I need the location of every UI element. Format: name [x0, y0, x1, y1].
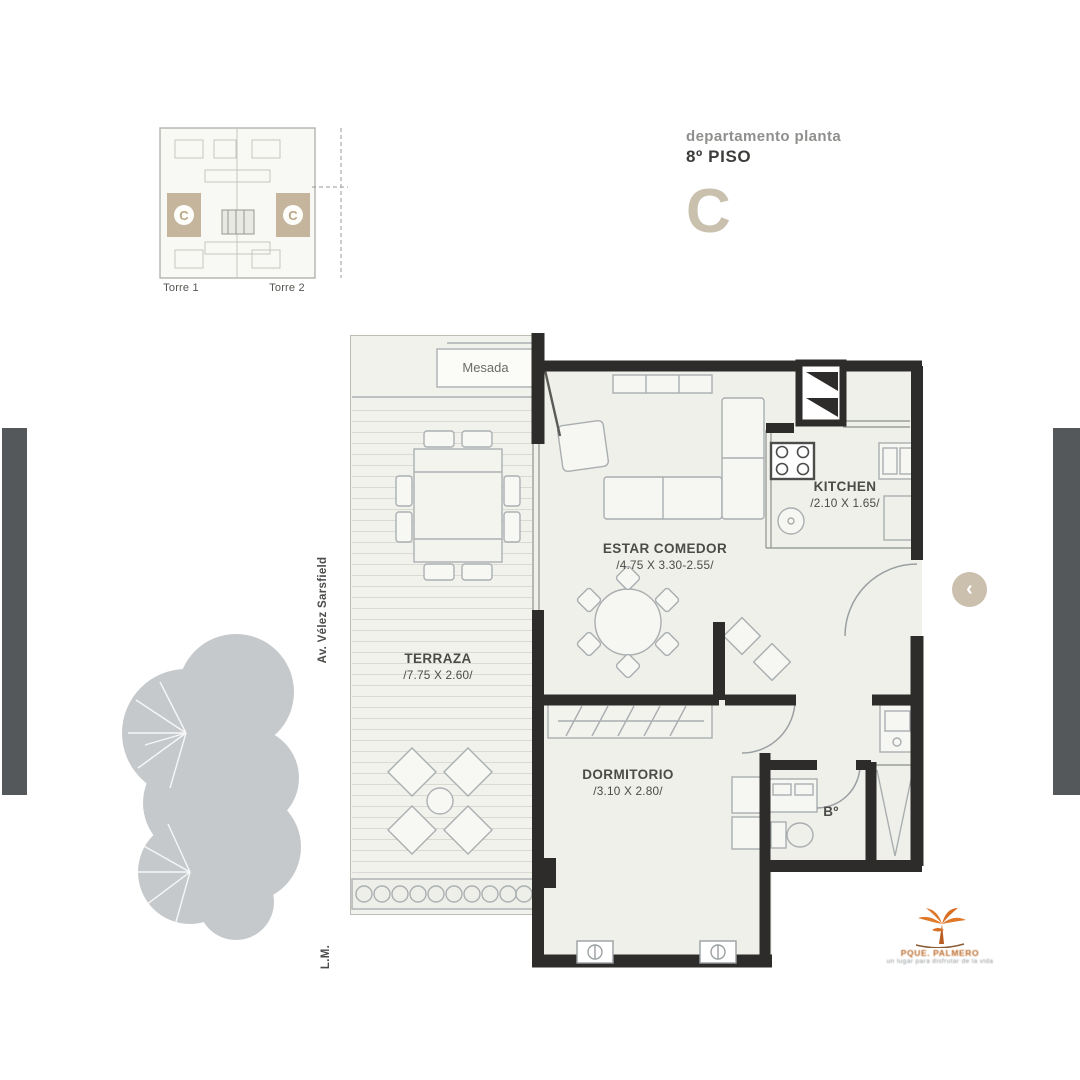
room-name: KITCHEN: [775, 478, 915, 496]
shower-icon: [877, 770, 913, 856]
room-name: ESTAR COMEDOR: [570, 540, 760, 558]
unit-floor-fill: [532, 361, 922, 961]
terrace-deck-lines: [352, 400, 532, 878]
key-plan: C C: [160, 128, 348, 278]
room-label-kitchen: KITCHEN /2.10 X 1.65/: [775, 478, 915, 512]
key-plan-unit-letter: C: [179, 208, 189, 223]
washer-icon: [880, 705, 915, 752]
room-name: Bº: [815, 803, 847, 821]
room-label-estar-comedor: ESTAR COMEDOR /4.75 X 3.30-2.55/: [570, 540, 760, 574]
header-kicker: departamento planta: [686, 128, 841, 145]
living-furniture: [557, 375, 764, 519]
adjacent-slide-left: [2, 428, 27, 795]
torre-1-label: Torre 1: [146, 282, 216, 294]
dining-table: [576, 565, 679, 678]
header-floor: 8º PISO: [686, 147, 841, 167]
hall-door-arc: [742, 700, 795, 753]
door-arcs: [545, 370, 917, 808]
wall-symbols: [577, 941, 736, 963]
walls: [532, 333, 922, 961]
toilet-icon: [771, 822, 786, 848]
room-dims: /4.75 X 3.30-2.55/: [570, 558, 760, 574]
key-plan-unit-highlight: [276, 193, 310, 237]
vanity-icon: [769, 779, 817, 812]
room-dims: /3.10 X 2.80/: [548, 784, 708, 800]
mesada-label: Mesada: [437, 360, 534, 375]
room-label-bathroom: Bº: [815, 803, 847, 821]
header-unit-letter: C: [686, 181, 841, 243]
street-label: Av. Vélez Sarsfield: [317, 530, 337, 690]
key-plan-extension-lines: [312, 128, 348, 278]
room-name: TERRAZA: [360, 650, 516, 668]
closet-hatch: [548, 704, 712, 738]
adjacent-slide-right: [1053, 428, 1080, 795]
kitchen-sink-icon: [879, 443, 916, 479]
listing-floorplan-slide: C C: [0, 0, 1080, 1080]
palm-tree-icon: [908, 900, 972, 948]
room-dims: /7.75 X 2.60/: [360, 668, 516, 684]
vent-shaft-icon: [799, 363, 843, 423]
room-dims: /2.10 X 1.65/: [775, 496, 915, 512]
previous-image-button[interactable]: ‹: [952, 572, 987, 607]
logo-brand-text: PQUE. PALMERO: [865, 948, 1015, 958]
bathroom-door-arc: [817, 765, 860, 808]
plan-header: departamento planta 8º PISO C: [686, 128, 841, 243]
room-name: DORMITORIO: [548, 766, 708, 784]
room-label-dormitorio: DORMITORIO /3.10 X 2.80/: [548, 766, 708, 800]
key-plan-unit-letter: C: [288, 208, 298, 223]
stove-icon: [771, 443, 814, 479]
developer-logo: PQUE. PALMERO un lugar para disfrutar de…: [865, 900, 1015, 965]
hall-desk: [724, 618, 791, 681]
property-line-label: L.M.: [320, 927, 340, 987]
room-label-terraza: TERRAZA /7.75 X 2.60/: [360, 650, 516, 684]
tree-canopies-icon: [122, 634, 301, 940]
torre-2-label: Torre 2: [252, 282, 322, 294]
logo-tagline-text: un lugar para disfrutar de la vida: [865, 958, 1015, 965]
key-plan-unit-highlight: [167, 193, 201, 237]
chevron-left-icon: ‹: [966, 579, 973, 599]
glazing-lines: [533, 421, 917, 765]
entry-door-arc: [845, 564, 917, 636]
terrace-door-leaf: [545, 370, 560, 436]
